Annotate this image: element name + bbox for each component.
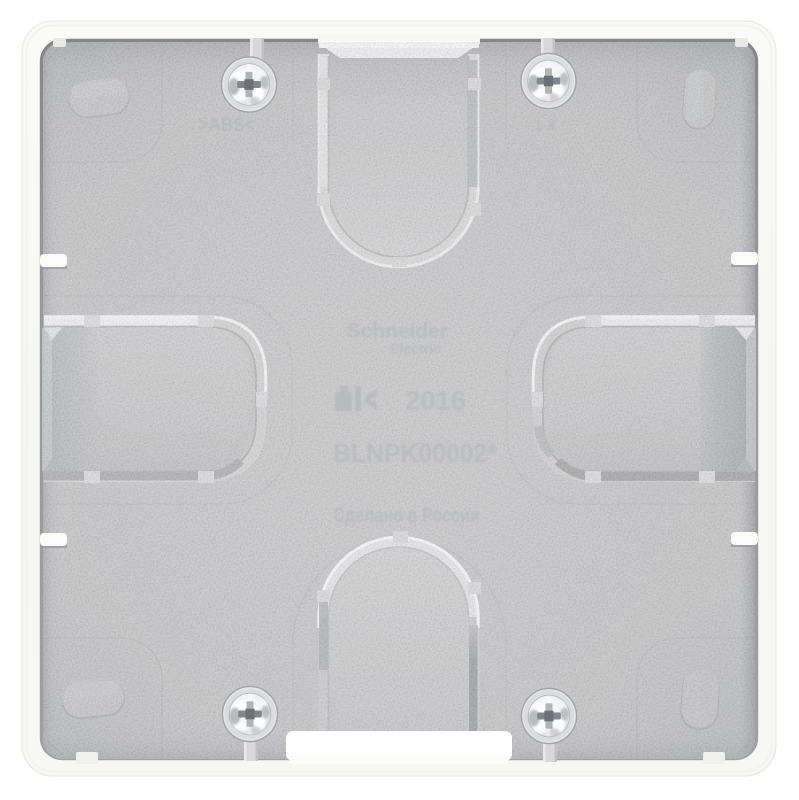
svg-text:Сделано в России: Сделано в России bbox=[333, 505, 480, 527]
svg-text:Electric: Electric bbox=[390, 341, 441, 358]
svg-text:2016: 2016 bbox=[405, 385, 466, 416]
svg-text:>ABS<: >ABS< bbox=[199, 115, 255, 136]
svg-text:Schneider: Schneider bbox=[347, 320, 448, 343]
svg-text:BLNPK00002*: BLNPK00002* bbox=[333, 438, 498, 468]
svg-text:1-X: 1-X bbox=[535, 117, 557, 134]
